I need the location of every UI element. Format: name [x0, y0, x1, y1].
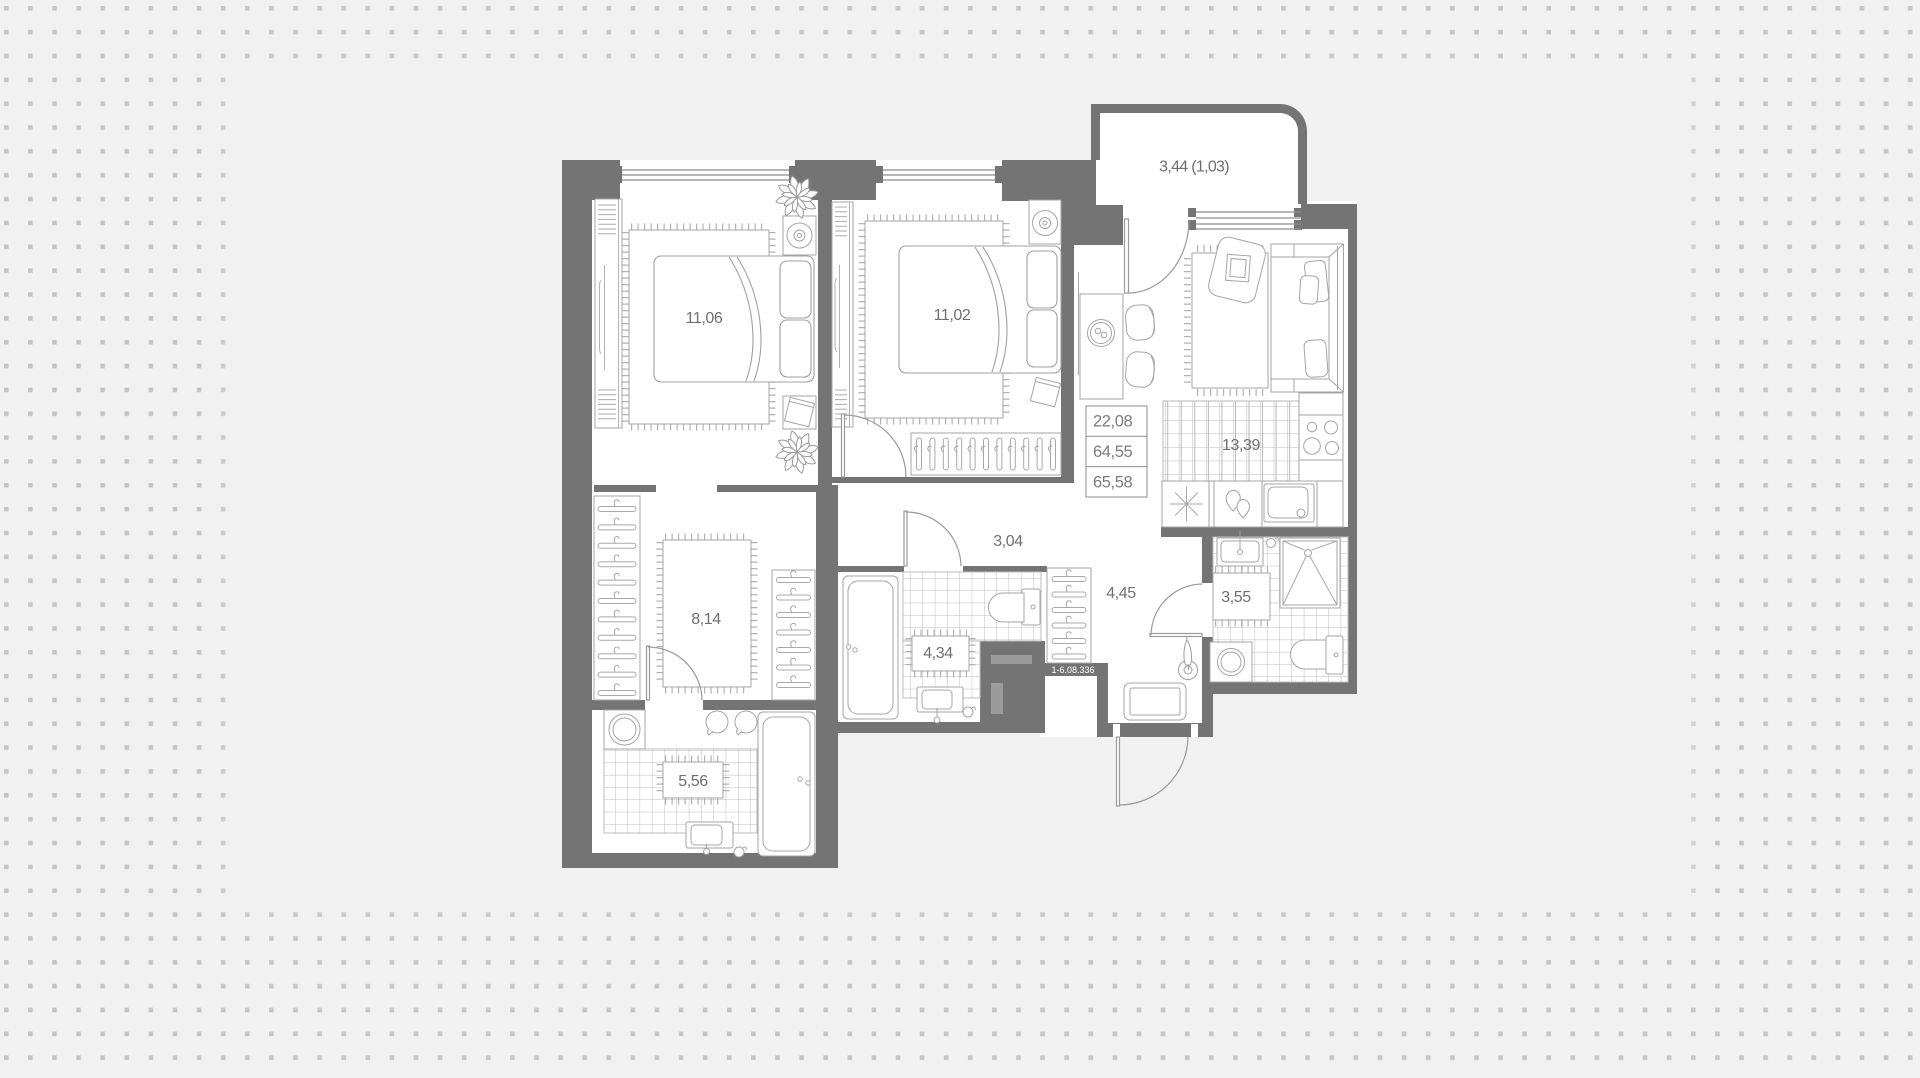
svg-text:11,02: 11,02 — [934, 307, 971, 324]
svg-text:13,39: 13,39 — [1222, 437, 1261, 454]
svg-text:22,08: 22,08 — [1093, 413, 1133, 431]
svg-text:5,56: 5,56 — [678, 773, 708, 790]
svg-text:8,14: 8,14 — [691, 611, 721, 628]
svg-text:65,58: 65,58 — [1093, 474, 1133, 492]
svg-text:3,44 (1,03): 3,44 (1,03) — [1159, 159, 1229, 176]
svg-text:3,04: 3,04 — [993, 533, 1023, 550]
svg-text:4,34: 4,34 — [923, 645, 953, 662]
svg-text:3,55: 3,55 — [1221, 589, 1251, 606]
svg-text:1-6.08.336: 1-6.08.336 — [1051, 665, 1094, 675]
svg-text:4,45: 4,45 — [1106, 585, 1136, 602]
svg-text:11,06: 11,06 — [686, 310, 723, 327]
svg-text:64,55: 64,55 — [1093, 443, 1133, 461]
